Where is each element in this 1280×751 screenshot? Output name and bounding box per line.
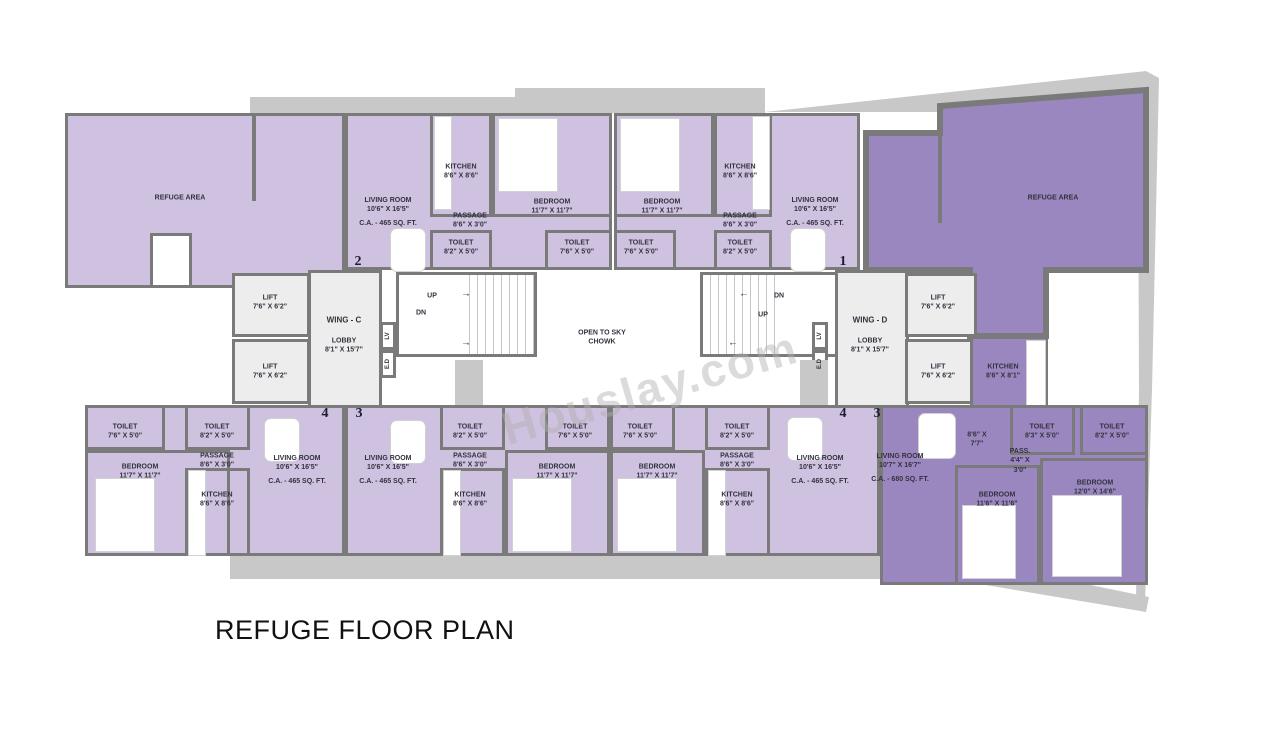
wing-d-lift-top-label: LIFT7'6" X 6'2" bbox=[921, 294, 955, 313]
wing-c-name-label: WING - C bbox=[327, 316, 362, 327]
unit-d3-bedroom-b-label: BEDROOM12'0" X 14'6" bbox=[1074, 479, 1116, 498]
unit-d4-kitchen-label: KITCHEN8'6" X 8'6" bbox=[720, 491, 754, 510]
refuge-left-notch bbox=[150, 233, 192, 288]
unit-c4-number: 4 bbox=[322, 406, 329, 422]
wing-c-duct bbox=[455, 360, 483, 405]
kitchen-counter-icon bbox=[1026, 340, 1046, 406]
kitchen-counter-icon bbox=[443, 470, 461, 556]
bed-icon bbox=[498, 118, 558, 192]
refuge-left-label: REFUGE AREA bbox=[155, 193, 206, 202]
wing-c-up-label: UP bbox=[427, 291, 437, 300]
kitchen-counter-icon bbox=[708, 470, 726, 556]
bed-icon bbox=[95, 478, 155, 552]
unit-c3-living-label: LIVING ROOM10'6" X 16'5" C.A. - 465 SQ. … bbox=[359, 454, 417, 486]
unit-c2-number: 2 bbox=[355, 254, 362, 270]
unit-d3-foyer-dim-label: 8'6" X7'7" bbox=[967, 431, 986, 450]
bed-icon bbox=[962, 505, 1016, 579]
page-title: REFUGE FLOOR PLAN bbox=[215, 615, 515, 646]
wing-c-lift-top-label: LIFT7'6" X 6'2" bbox=[253, 294, 287, 313]
wing-c-stair-treads bbox=[462, 275, 534, 354]
unit-d3-number: 3 bbox=[874, 406, 881, 422]
wing-d-duct bbox=[800, 360, 828, 405]
unit-d1-bedroom-label: BEDROOM11'7" X 11'7" bbox=[641, 198, 682, 217]
unit-d4-living-label: LIVING ROOM10'6" X 16'5" C.A. - 465 SQ. … bbox=[791, 454, 849, 486]
unit-c4-kitchen-label: KITCHEN8'6" X 8'6" bbox=[200, 491, 234, 510]
unit-d3-toilet-b-label: TOILET8'2" X 5'0" bbox=[1095, 423, 1129, 442]
unit-d3-kitchen-label: KITCHEN8'6" X 8'1" bbox=[986, 363, 1020, 382]
wing-d-lv-label: LV bbox=[817, 332, 823, 339]
unit-d4-toilet-b-label: TOILET8'2" X 5'0" bbox=[720, 423, 754, 442]
bed-icon bbox=[620, 118, 680, 192]
unit-c4-toilet-b-label: TOILET8'2" X 5'0" bbox=[200, 423, 234, 442]
unit-c4-bedroom-label: BEDROOM11'7" X 11'7" bbox=[119, 463, 160, 482]
unit-d4-number: 4 bbox=[840, 406, 847, 422]
unit-c4-passage-label: PASSAGE8'6" X 3'0" bbox=[200, 452, 234, 471]
wing-d-lift-bottom-label: LIFT7'6" X 6'2" bbox=[921, 363, 955, 382]
unit-d3-pass-label: PASS.4'4" X3'0" bbox=[1010, 447, 1031, 475]
refuge-right-inner-wall bbox=[938, 133, 942, 223]
unit-d1-living-label: LIVING ROOM10'6" X 16'5" C.A. - 465 SQ. … bbox=[786, 196, 844, 228]
wing-d-lobby-label: LOBBY8'1" X 15'7" bbox=[851, 337, 889, 356]
refuge-right-label: REFUGE AREA bbox=[1028, 193, 1079, 202]
dn-arrow-icon: ← bbox=[739, 289, 749, 300]
unit-c2-toilet-b-label: TOILET7'6" X 5'0" bbox=[560, 239, 594, 258]
unit-c2-kitchen-label: KITCHEN8'6" X 8'6" bbox=[444, 163, 478, 182]
unit-c3-bedroom-label: BEDROOM11'7" X 11'7" bbox=[536, 463, 577, 482]
unit-d1-number: 1 bbox=[840, 254, 847, 270]
unit-c2-passage-label: PASSAGE8'6" X 3'0" bbox=[453, 212, 487, 231]
bed-icon bbox=[617, 478, 677, 552]
unit-d1-kitchen-label: KITCHEN8'6" X 8'6" bbox=[723, 163, 757, 182]
unit-d1-passage-label: PASSAGE8'6" X 3'0" bbox=[723, 212, 757, 231]
unit-c3-number: 3 bbox=[356, 406, 363, 422]
unit-d4-toilet-a-label: TOILET7'6" X 5'0" bbox=[623, 423, 657, 442]
unit-c3-kitchen-label: KITCHEN8'6" X 8'6" bbox=[453, 491, 487, 510]
wing-c-lobby-label: LOBBY8'1" X 15'7" bbox=[325, 337, 363, 356]
unit-c2-living-label: LIVING ROOM10'6" X 16'5" C.A. - 465 SQ. … bbox=[359, 196, 417, 228]
chowk-label: OPEN TO SKYCHOWK bbox=[578, 329, 626, 348]
unit-d3-toilet-a-label: TOILET8'3" X 5'0" bbox=[1025, 423, 1059, 442]
floor-plan-canvas: REFUGE AREA REFUGE AREA LIVING ROOM10'6"… bbox=[0, 0, 1280, 751]
unit-c4-toilet-a-label: TOILET7'6" X 5'0" bbox=[108, 423, 142, 442]
up-arrow-icon: → bbox=[461, 289, 471, 300]
unit-d4-passage-label: PASSAGE8'6" X 3'0" bbox=[720, 452, 754, 471]
unit-d3-living-label: LIVING ROOM10'7" X 16'7" C.A. - 680 SQ. … bbox=[871, 452, 929, 484]
wing-d-ed-label: E.D bbox=[817, 359, 823, 369]
dining-table-icon bbox=[390, 228, 426, 272]
unit-c3-toilet-a-label: TOILET8'2" X 5'0" bbox=[453, 423, 487, 442]
bed-icon bbox=[512, 478, 572, 552]
unit-d4-bedroom-label: BEDROOM11'7" X 11'7" bbox=[636, 463, 677, 482]
wing-d-up-label: UP bbox=[758, 310, 768, 319]
dn-arrow-icon: → bbox=[461, 338, 471, 349]
wing-d-dn-label: DN bbox=[774, 291, 784, 300]
unit-c2-toilet-a-label: TOILET8'2" X 5'0" bbox=[444, 239, 478, 258]
unit-d1-toilet-b-label: TOILET8'2" X 5'0" bbox=[723, 239, 757, 258]
bed-icon bbox=[1052, 495, 1122, 577]
wing-c-dn-label: DN bbox=[416, 308, 426, 317]
wing-c-lift-bottom-label: LIFT7'6" X 6'2" bbox=[253, 363, 287, 382]
wing-d-name-label: WING - D bbox=[853, 316, 888, 327]
kitchen-counter-icon bbox=[188, 470, 206, 556]
unit-d3-bedroom-a-label: BEDROOM11'6" X 11'6" bbox=[976, 491, 1017, 510]
dining-table-icon bbox=[790, 228, 826, 272]
wing-c-lv-label: LV bbox=[385, 332, 391, 339]
unit-c3-passage-label: PASSAGE8'6" X 3'0" bbox=[453, 452, 487, 471]
wing-c-ed-label: E.D bbox=[385, 359, 391, 369]
unit-d1-toilet-a-label: TOILET7'6" X 5'0" bbox=[624, 239, 658, 258]
refuge-left-inner-wall bbox=[252, 116, 256, 201]
unit-c2-bedroom-label: BEDROOM11'7" X 11'7" bbox=[531, 198, 572, 217]
unit-c4-living-label: LIVING ROOM10'6" X 16'5" C.A. - 465 SQ. … bbox=[268, 454, 326, 486]
